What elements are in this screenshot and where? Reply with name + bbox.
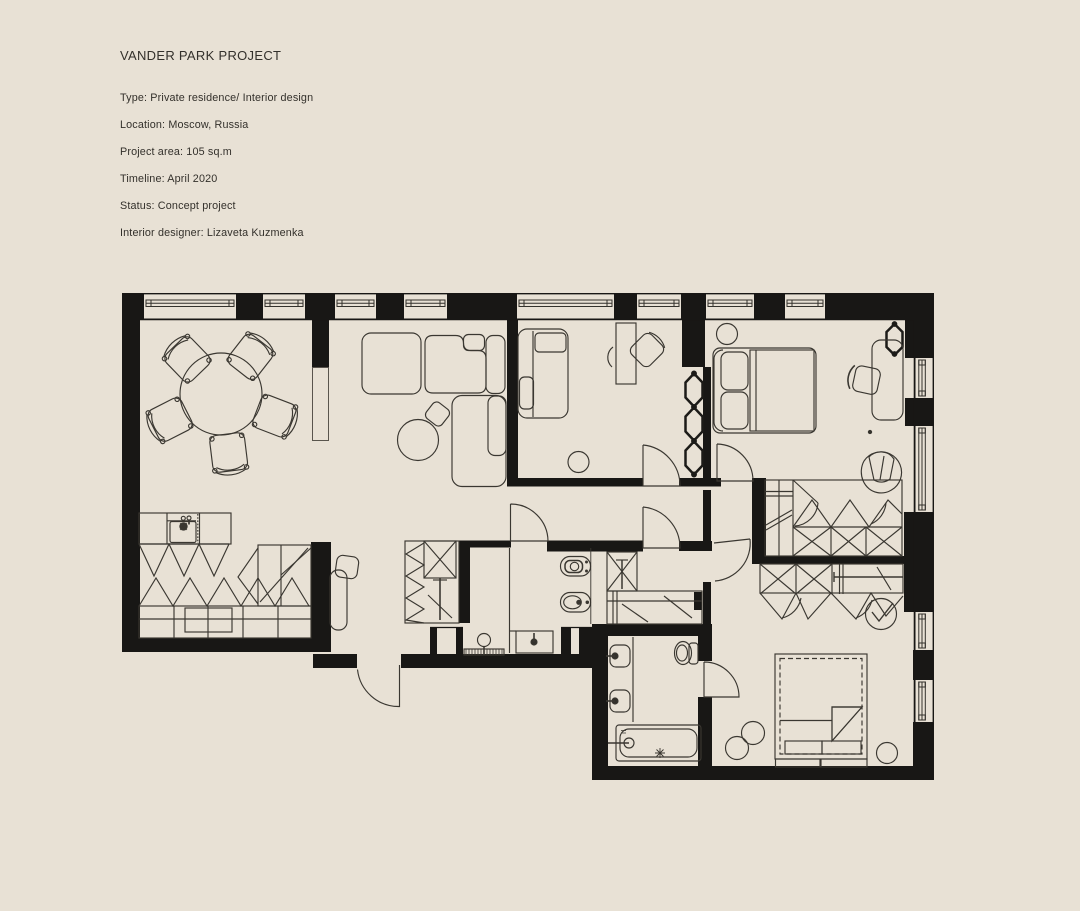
svg-text:Type: Private residence/ Inter: Type: Private residence/ Interior design [120,92,313,104]
svg-text:Timeline: April 2020: Timeline: April 2020 [120,173,217,185]
svg-text:Interior designer: Lizaveta Ku: Interior designer: Lizaveta Kuzmenka [120,227,304,239]
svg-text:Status: Concept project: Status: Concept project [120,200,236,212]
svg-text:Project area: 105 sq.m: Project area: 105 sq.m [120,146,232,158]
svg-text:Location: Moscow, Russia: Location: Moscow, Russia [120,119,248,131]
svg-text:VANDER PARK PROJECT: VANDER PARK PROJECT [120,48,281,63]
